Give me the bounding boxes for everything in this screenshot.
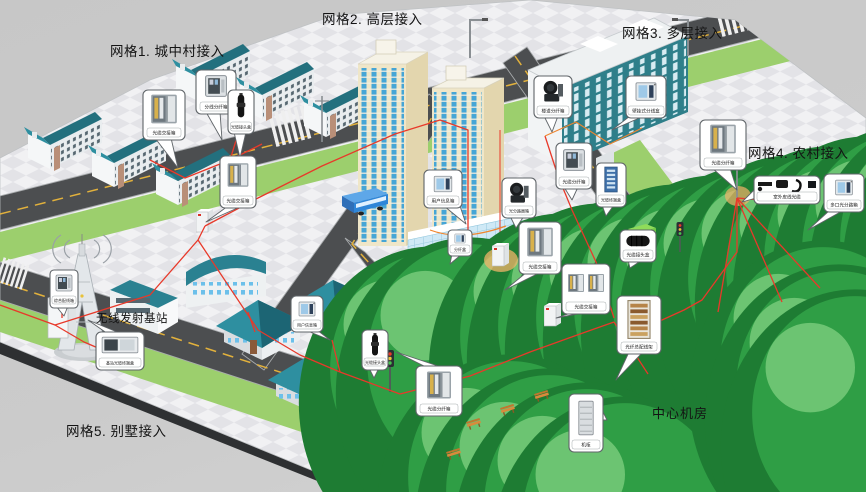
callout-rural-drop-cable: 室外皮线光缆	[742, 176, 820, 204]
svg-text:光缆接头盒: 光缆接头盒	[627, 252, 650, 259]
svg-text:光缆交接箱: 光缆交接箱	[153, 130, 176, 137]
svg-text:光缆交接箱: 光缆交接箱	[529, 264, 552, 271]
svg-text:光缆交接箱: 光缆交接箱	[575, 304, 598, 311]
svg-text:室外皮线光缆: 室外皮线光缆	[773, 194, 801, 201]
callout-co-splice-closure: 光缆接头盒	[620, 230, 656, 268]
svg-text:分纤盒: 分纤盒	[454, 246, 466, 252]
grid3-label: 网格3. 多层接入	[622, 25, 723, 41]
callout-co-equipment-rack: 机柜	[569, 394, 607, 452]
callout-co-cross-connect: 光缆交接箱	[556, 264, 610, 318]
central-office-label: 中心机房	[652, 406, 708, 421]
svg-text:机柜: 机柜	[581, 442, 591, 449]
svg-text:基站光缆终端盒: 基站光缆终端盒	[106, 360, 134, 366]
svg-text:光缆终端盒: 光缆终端盒	[601, 197, 621, 203]
network-grid-diagram: OMDF OLT	[0, 0, 866, 492]
svg-text:光分路器箱: 光分路器箱	[509, 208, 529, 214]
svg-text:楼道分纤箱: 楼道分纤箱	[542, 108, 565, 115]
svg-text:光缆分纤箱: 光缆分纤箱	[563, 179, 586, 186]
grid1-label: 网格1. 城中村接入	[110, 43, 225, 59]
svg-text:光缆分纤箱: 光缆分纤箱	[428, 406, 451, 413]
svg-text:光缆交接箱: 光缆交接箱	[227, 198, 250, 205]
svg-text:用户信息箱: 用户信息箱	[297, 322, 317, 328]
svg-text:多口光分路箱: 多口光分路箱	[830, 202, 858, 209]
grid2-label: 网格2. 高层接入	[322, 11, 423, 27]
svg-text:综合配线箱: 综合配线箱	[54, 297, 74, 303]
svg-text:壁挂式分线盒: 壁挂式分线盒	[632, 108, 660, 115]
diagram-canvas: OMDF OLT	[0, 0, 866, 492]
grid4-label: 网格4. 农村接入	[748, 145, 849, 161]
svg-text:光缆分纤箱: 光缆分纤箱	[712, 160, 735, 167]
svg-text:光缆接头盒: 光缆接头盒	[365, 359, 385, 365]
base-station-label: 无线发射基站	[96, 311, 168, 325]
svg-text:光纤总配线架: 光纤总配线架	[625, 344, 653, 351]
grid5-label: 网格5. 别墅接入	[66, 423, 167, 439]
svg-text:光缆接头盒: 光缆接头盒	[231, 124, 251, 130]
svg-text:分线分纤箱: 分线分纤箱	[205, 104, 228, 111]
svg-text:用户信息箱: 用户信息箱	[432, 198, 455, 205]
